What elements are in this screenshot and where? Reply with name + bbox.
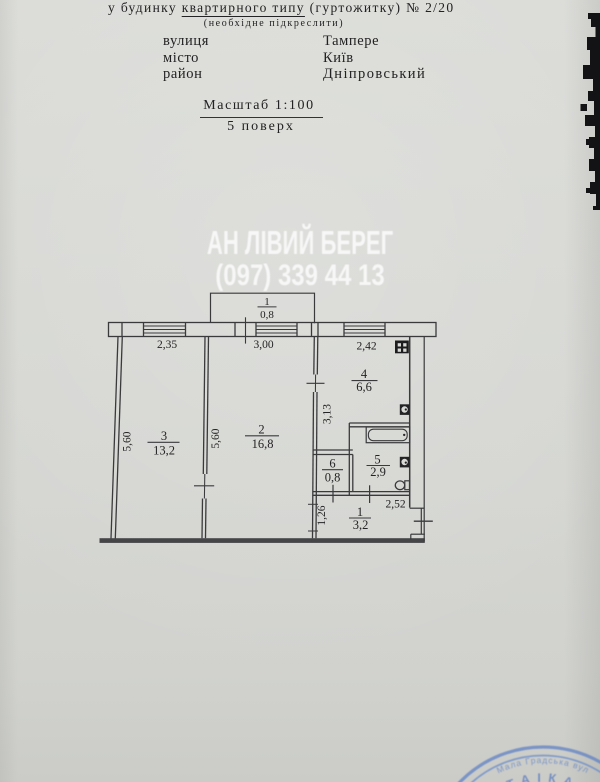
- svg-text:5,60: 5,60: [210, 428, 222, 448]
- svg-text:2: 2: [258, 423, 264, 437]
- svg-text:1: 1: [264, 296, 270, 308]
- svg-text:6: 6: [329, 457, 335, 471]
- svg-text:ТАІКА: ТАІКА: [505, 771, 581, 782]
- svg-text:2,52: 2,52: [385, 499, 405, 511]
- svg-text:5,60: 5,60: [122, 431, 134, 451]
- svg-text:3,13: 3,13: [322, 404, 334, 424]
- svg-text:2,35: 2,35: [157, 339, 177, 351]
- svg-text:3,2: 3,2: [353, 518, 369, 532]
- svg-text:16,8: 16,8: [252, 437, 274, 451]
- svg-text:3: 3: [161, 429, 167, 443]
- svg-text:2,42: 2,42: [356, 341, 376, 353]
- svg-text:0,8: 0,8: [325, 471, 341, 485]
- svg-text:2,9: 2,9: [370, 465, 386, 479]
- svg-text:6,6: 6,6: [356, 380, 372, 394]
- svg-text:3,00: 3,00: [253, 339, 273, 351]
- svg-text:0,8: 0,8: [260, 309, 274, 321]
- svg-text:1,26: 1,26: [316, 505, 328, 525]
- svg-text:13,2: 13,2: [153, 444, 175, 458]
- svg-text:1: 1: [357, 505, 363, 519]
